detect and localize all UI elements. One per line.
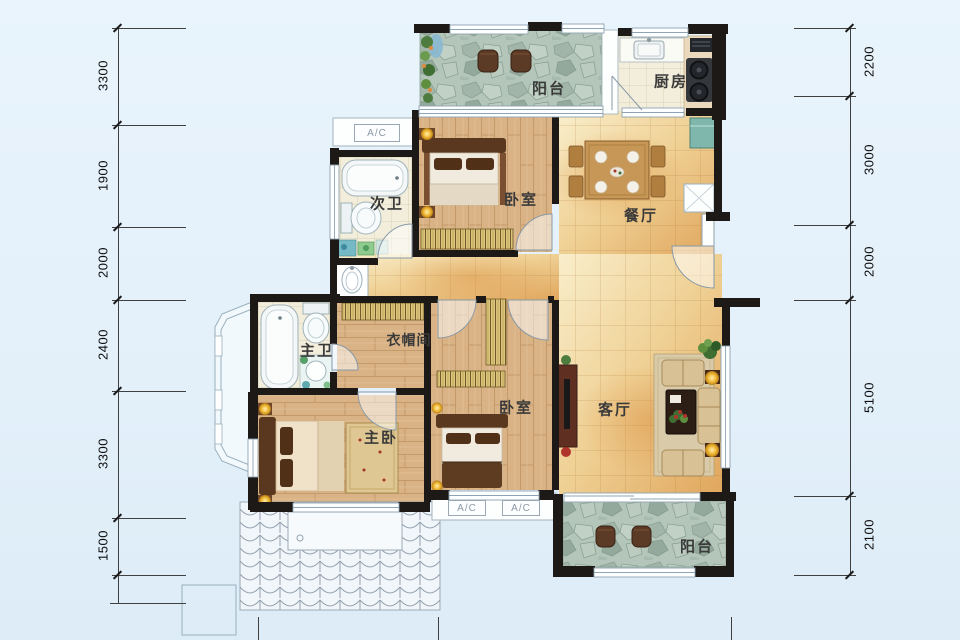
bedside-lamp xyxy=(432,481,443,492)
corridor-washbasin xyxy=(336,262,368,299)
dim-right-2: 2000 xyxy=(862,230,877,294)
window xyxy=(721,346,730,468)
dimension-ext xyxy=(112,575,186,576)
dimension-ext xyxy=(438,617,439,640)
room-label-bedroom-second: 卧室 xyxy=(499,397,533,418)
dim-left-5: 1500 xyxy=(96,514,111,578)
room-label-bedroom-top: 卧室 xyxy=(504,189,538,210)
room-label-bath-second: 次卫 xyxy=(370,193,404,214)
dim-left-3: 2400 xyxy=(96,313,111,377)
room-label-balcony-bottom: 阳台 xyxy=(680,536,714,557)
bedside-lamp xyxy=(259,403,271,415)
window xyxy=(594,568,695,577)
window xyxy=(293,503,399,512)
window xyxy=(419,106,603,117)
window xyxy=(450,25,528,34)
window xyxy=(632,28,688,37)
dim-right-1: 3000 xyxy=(862,128,877,192)
roof-skylight xyxy=(288,512,402,550)
dimension-ext xyxy=(112,125,186,126)
bedside-lamp xyxy=(421,206,433,218)
dim-right-3: 5100 xyxy=(862,366,877,430)
wardrobe-cloakroom xyxy=(342,303,424,320)
dim-right-0: 2200 xyxy=(862,30,877,94)
dimension-ext xyxy=(112,518,186,519)
window xyxy=(330,165,339,239)
kitchen-counter-sink xyxy=(620,38,686,62)
roof-awning xyxy=(240,502,440,610)
window xyxy=(622,108,684,117)
room-label-living: 客厅 xyxy=(598,399,632,420)
dim-right-4: 2100 xyxy=(862,503,877,567)
toilet-master xyxy=(303,303,329,343)
wardrobe-bedroom-top xyxy=(421,229,513,249)
wardrobe-bedroom-second xyxy=(437,371,505,387)
room-label-balcony-top: 阳台 xyxy=(532,78,566,99)
ac-unit-label: A/C xyxy=(354,124,400,142)
bedside-lamp xyxy=(421,128,433,140)
bay-window xyxy=(215,302,252,473)
floor-plan-canvas: 阳台 厨房 次卫 卧室 餐厅 主卫 衣帽间 主卧 卧室 客厅 阳台 A/C A/… xyxy=(0,0,960,640)
dim-left-4: 3300 xyxy=(96,422,111,486)
dimension-ext xyxy=(731,617,732,640)
floor-balcony-top xyxy=(420,30,602,112)
dimension-ext xyxy=(112,28,186,29)
window xyxy=(562,24,604,33)
dimension-ext xyxy=(110,603,186,604)
window xyxy=(449,491,539,500)
refrigerator xyxy=(690,118,716,148)
window xyxy=(248,439,258,477)
dimension-ext xyxy=(112,300,186,301)
dimension-ext xyxy=(112,391,186,392)
room-label-cloakroom: 衣帽间 xyxy=(387,330,432,350)
sliding-door xyxy=(564,493,700,502)
kitchen-stove xyxy=(684,36,714,114)
dim-left-2: 2000 xyxy=(96,231,111,295)
bathtub-second xyxy=(342,160,408,196)
bed-top xyxy=(419,128,506,218)
corner-lamp xyxy=(705,443,719,457)
tv-cabinet xyxy=(556,355,577,457)
corner-lamp xyxy=(705,371,719,385)
bedside-lamp xyxy=(432,403,443,414)
bathtub-master xyxy=(261,305,298,389)
sofa-set xyxy=(654,354,720,476)
dim-left-0: 3300 xyxy=(96,44,111,108)
ac-unit-label: A/C xyxy=(502,500,540,516)
outdoor-platform xyxy=(182,585,236,635)
ac-unit-label: A/C xyxy=(448,500,486,516)
balcony-kitchen-divider xyxy=(602,30,618,114)
dimension-ext xyxy=(258,617,259,640)
bed-second xyxy=(432,403,509,492)
dim-left-1: 1900 xyxy=(96,144,111,208)
room-label-bedroom-master: 主卧 xyxy=(364,427,398,448)
room-label-dining: 餐厅 xyxy=(624,205,658,226)
room-label-kitchen: 厨房 xyxy=(654,71,688,92)
room-label-bath-master: 主卫 xyxy=(300,340,334,361)
wardrobe-vertical xyxy=(486,299,506,365)
dimension-ext xyxy=(112,227,186,228)
